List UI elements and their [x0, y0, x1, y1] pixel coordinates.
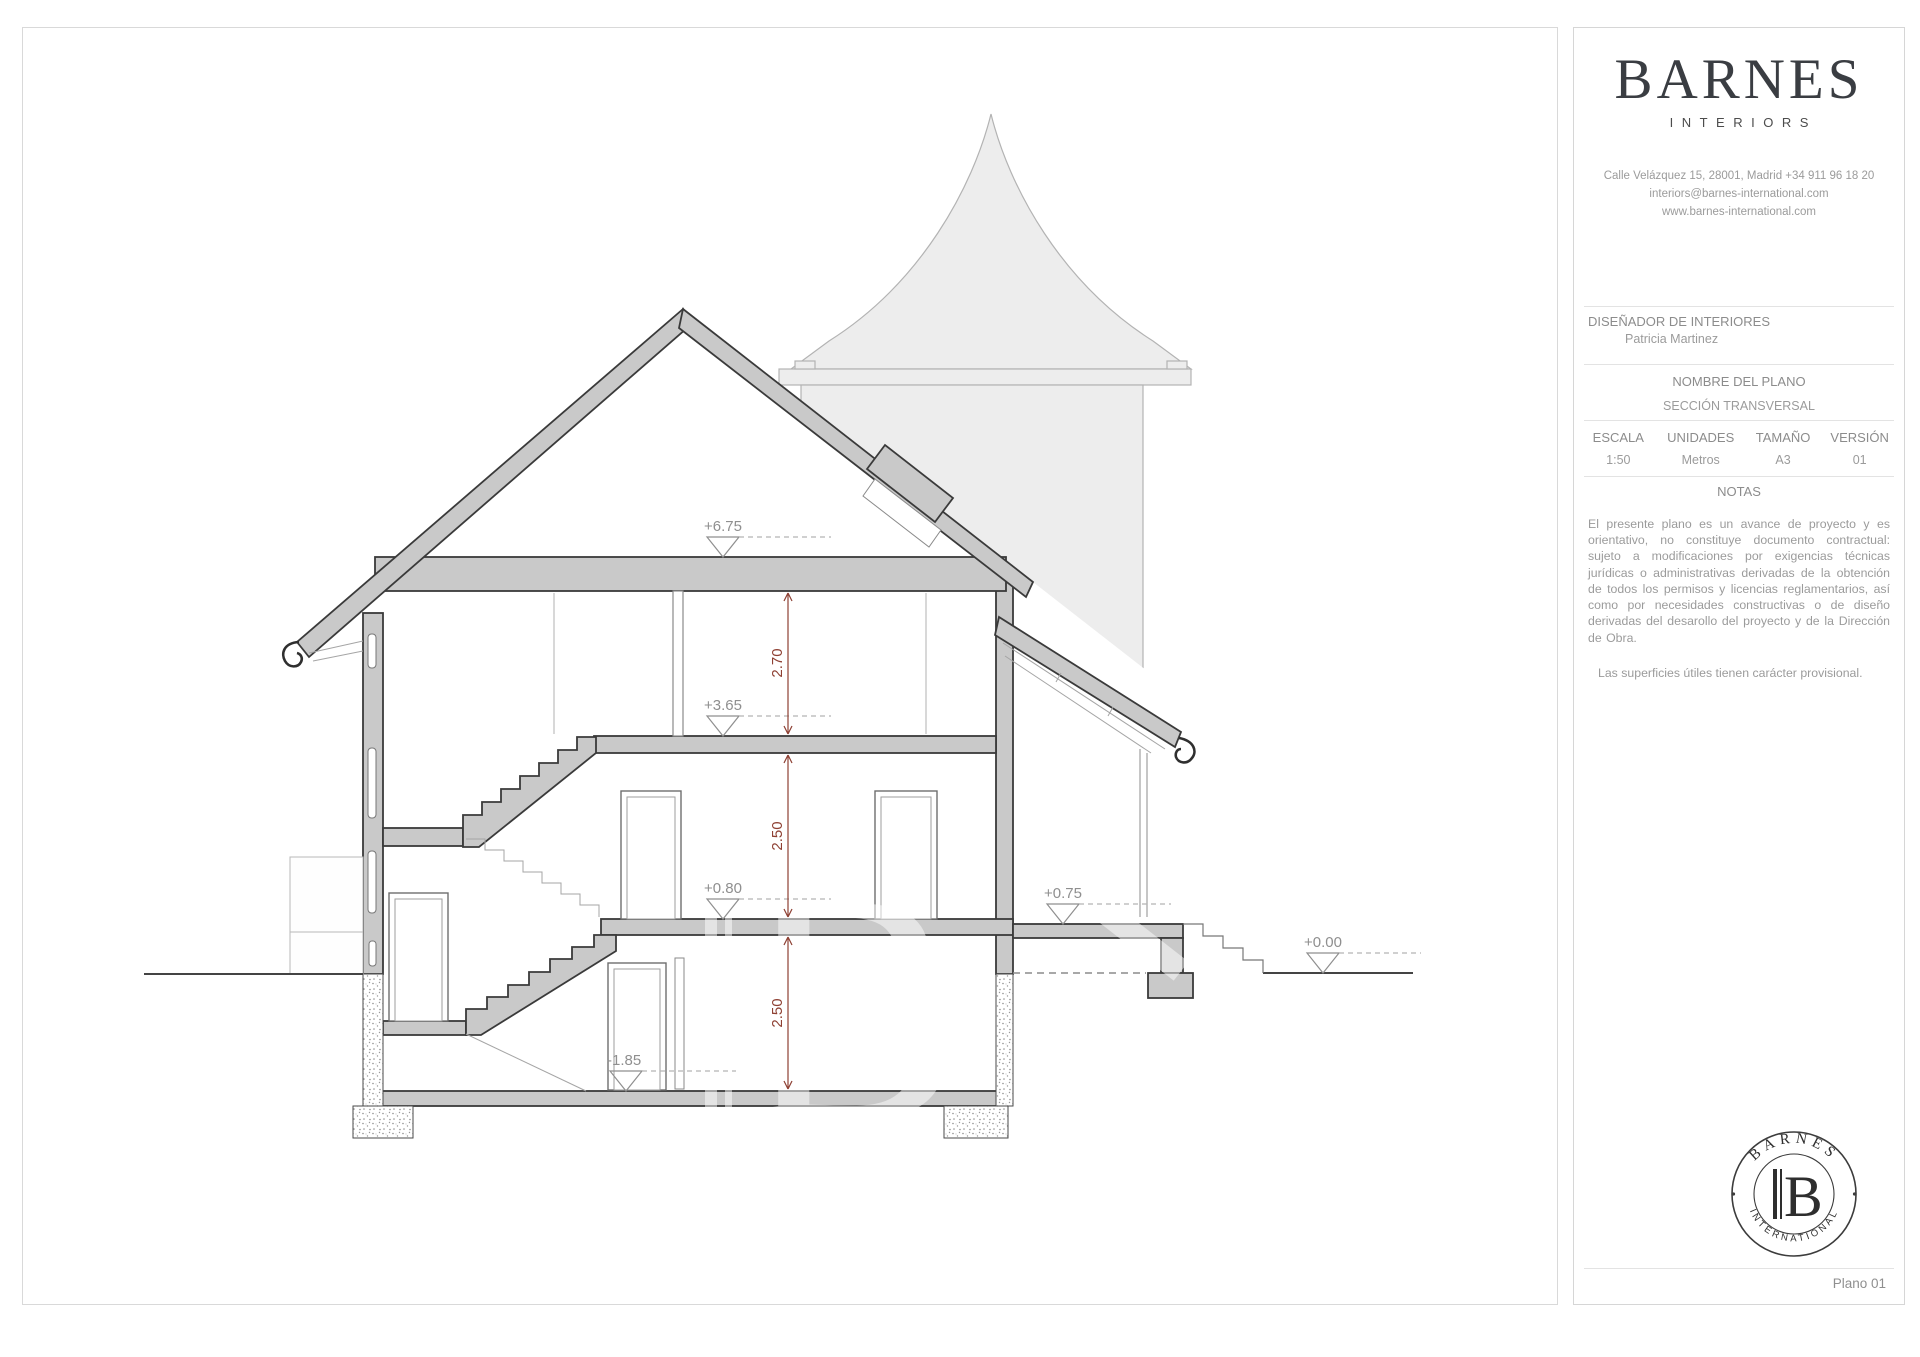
stair-flight-lower	[466, 935, 616, 1035]
level-marker-3-65: +3.65	[704, 697, 831, 736]
designer-name: Patricia Martinez	[1588, 332, 1770, 346]
plan-name-label: NOMBRE DEL PLANO	[1574, 374, 1904, 389]
dimension-lines: 2.70 2.50 2.50	[769, 593, 792, 1089]
stair-landing-lower	[383, 1021, 466, 1035]
level-marker-6-75: +6.75	[704, 518, 831, 557]
contact-website: www.barnes-international.com	[1574, 203, 1904, 221]
spec-value-escala: 1:50	[1580, 453, 1657, 467]
seal-dot-left	[1732, 1192, 1735, 1195]
sheet-number: Plano 01	[1833, 1276, 1886, 1291]
door-landing-left	[389, 893, 448, 1021]
svg-text:+0.00: +0.00	[1304, 934, 1342, 951]
plan-name-section: NOMBRE DEL PLANO SECCIÓN TRANSVERSAL	[1574, 374, 1904, 413]
seal-monogram-bar	[1773, 1169, 1777, 1219]
stair-landing-upper	[383, 828, 463, 846]
stair-behind-flight	[466, 839, 599, 917]
stair-flight-upper	[463, 737, 596, 847]
upper-floor-slab	[594, 736, 996, 753]
svg-text:BARNES: BARNES	[1746, 1131, 1841, 1164]
porch-roof	[995, 617, 1194, 917]
divider	[1584, 364, 1894, 365]
tower-turret	[779, 114, 1191, 715]
svg-text:+6.75: +6.75	[704, 518, 742, 535]
drawing-sheet: B +6.75 +3.65 +0.80	[22, 27, 1558, 1305]
brand-subtitle: INTERIORS	[1574, 115, 1904, 130]
plan-sheet-page: B +6.75 +3.65 +0.80	[0, 0, 1920, 1357]
tower-cornice	[779, 369, 1191, 385]
exterior-steps	[1183, 924, 1263, 973]
divider	[1584, 420, 1894, 421]
stair-soffit-line	[466, 1034, 586, 1091]
notes-section: NOTAS El presente plano es un avance de …	[1588, 484, 1890, 680]
barnes-international-seal: BARNES INTERNATIONAL B	[1724, 1124, 1864, 1264]
plan-name-value: SECCIÓN TRANSVERSAL	[1574, 399, 1904, 413]
spec-value-tamano: A3	[1745, 453, 1822, 467]
svg-text:+0.80: +0.80	[704, 880, 742, 897]
spec-header-version: VERSIÓN	[1821, 430, 1898, 445]
svg-text:2.50: 2.50	[769, 821, 786, 850]
contact-block: Calle Velázquez 15, 28001, Madrid +34 91…	[1574, 167, 1904, 221]
seal-top-text: BARNES	[1746, 1131, 1841, 1164]
terrace-slab	[1013, 924, 1183, 938]
svg-text:+0.75: +0.75	[1044, 885, 1082, 902]
gutter-right-icon	[1176, 738, 1195, 762]
svg-text:2.50: 2.50	[769, 998, 786, 1027]
svg-text:2.70: 2.70	[769, 648, 786, 677]
designer-label: DISEÑADOR DE INTERIORES	[1588, 314, 1770, 329]
brand-logo: BARNES	[1574, 50, 1904, 110]
spec-value-unidades: Metros	[1657, 453, 1745, 467]
contact-email: interiors@barnes-international.com	[1574, 185, 1904, 203]
left-annex-elevation	[290, 857, 363, 974]
downspout	[1140, 749, 1147, 917]
tower-conical-roof	[791, 114, 1191, 369]
seal-monogram: B	[1784, 1164, 1823, 1229]
spec-header-escala: ESCALA	[1580, 430, 1657, 445]
brand-block: BARNES INTERIORS	[1574, 50, 1904, 130]
svg-text:-1.85: -1.85	[607, 1052, 641, 1069]
spec-header-unidades: UNIDADES	[1657, 430, 1745, 445]
svg-text:+3.65: +3.65	[704, 697, 742, 714]
spec-header-tamano: TAMAÑO	[1745, 430, 1822, 445]
dimension-2-70: 2.70	[769, 593, 792, 734]
seal-dot-right	[1853, 1192, 1856, 1195]
roof-left-slope	[297, 309, 687, 657]
attic-floor-slab	[375, 557, 1006, 591]
notes-label: NOTAS	[1588, 484, 1890, 499]
notes-secondary: Las superficies útiles tienen carácter p…	[1588, 666, 1890, 680]
divider	[1584, 1268, 1894, 1269]
divider	[1584, 306, 1894, 307]
footing-left	[353, 1106, 413, 1138]
designer-section: DISEÑADOR DE INTERIORES Patricia Martine…	[1588, 314, 1770, 346]
cross-section-drawing: B +6.75 +3.65 +0.80	[23, 28, 1559, 1306]
seal-monogram-bar	[1780, 1169, 1782, 1219]
notes-paragraph: El presente plano es un avance de proyec…	[1588, 516, 1890, 646]
level-marker-0-00: +0.00	[1304, 934, 1421, 973]
contact-address: Calle Velázquez 15, 28001, Madrid +34 91…	[1574, 167, 1904, 185]
door-upper-left	[621, 791, 681, 919]
spec-value-version: 01	[1821, 453, 1898, 467]
spec-table: ESCALA UNIDADES TAMAÑO VERSIÓN 1:50 Metr…	[1580, 430, 1898, 467]
title-block-panel: BARNES INTERIORS Calle Velázquez 15, 280…	[1573, 27, 1905, 1305]
divider	[1584, 476, 1894, 477]
